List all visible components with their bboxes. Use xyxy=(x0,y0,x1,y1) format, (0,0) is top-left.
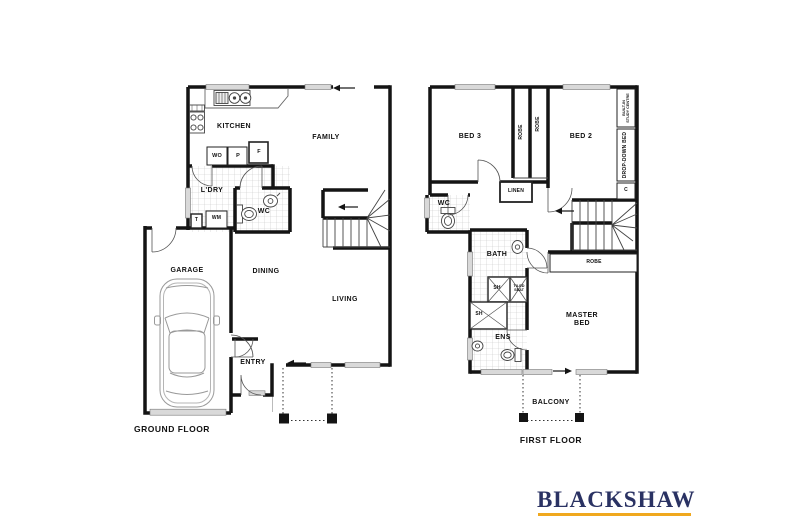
floorplan-page: KITCHENFAMILYWOPFL'DRYWCTWMGARAGEDININGL… xyxy=(0,0,790,527)
bed-2-label: BED 2 xyxy=(570,133,593,141)
balcony-door-arrow xyxy=(553,368,572,374)
window xyxy=(345,363,380,368)
robe-bed2-label: ROBE xyxy=(536,116,542,131)
window xyxy=(481,370,522,375)
car-icon xyxy=(155,279,220,407)
window xyxy=(206,85,249,90)
balcony-label: BALCONY xyxy=(532,399,569,407)
bath-label: BATH xyxy=(487,251,508,259)
ground-floor-plan xyxy=(145,85,390,424)
balcony-door xyxy=(523,370,552,375)
toilet-icon xyxy=(515,349,521,362)
washing-machine-label: WM xyxy=(212,216,221,222)
robe-master-label: ROBE xyxy=(586,260,601,266)
dining-label: DINING xyxy=(253,268,280,276)
built-in-study-label: BUILT-IN STUDY CENTRE xyxy=(622,93,631,122)
window xyxy=(563,85,610,90)
wc-ground-label: WC xyxy=(258,208,270,216)
tub-label: T xyxy=(195,218,198,224)
robe-bed3-label: ROBE xyxy=(519,124,525,139)
blackshaw-logo: BLACKSHAW xyxy=(537,487,693,513)
stairs-direction-arrow xyxy=(555,208,574,214)
family-door-arrow xyxy=(333,85,355,91)
first-floor-plan xyxy=(425,85,638,423)
wc-first-label: WC xyxy=(438,200,450,208)
blackshaw-logo-underline xyxy=(538,513,691,516)
window xyxy=(186,188,191,218)
porch-post xyxy=(327,414,337,424)
ensuite-label: ENS xyxy=(495,334,511,342)
window xyxy=(425,198,430,218)
wall-oven-label: WO xyxy=(212,153,222,159)
living-label: LIVING xyxy=(332,296,358,304)
window xyxy=(305,85,331,90)
family-label: FAMILY xyxy=(312,134,339,142)
window xyxy=(468,252,473,276)
linen-label: LINEN xyxy=(508,189,524,195)
ground-floor-title: GROUND FLOOR xyxy=(134,424,210,434)
garage-door xyxy=(150,409,226,415)
balcony-post xyxy=(519,413,528,422)
window xyxy=(468,338,473,360)
tiled-seat-label: TILED SEAT xyxy=(514,284,525,293)
laundry-label: L'DRY xyxy=(201,187,223,195)
window xyxy=(576,370,607,375)
pantry-label: P xyxy=(236,153,240,159)
balcony-outline xyxy=(523,375,580,421)
first-stairs xyxy=(572,200,637,250)
stove-icon xyxy=(190,105,205,133)
cupboard-label: C xyxy=(624,188,628,194)
shower-ens-label: SH xyxy=(475,312,482,318)
kitchen-label: KITCHEN xyxy=(217,123,251,131)
drop-down-bed-label: DROP-DOWN BED xyxy=(623,132,629,179)
bed-3-label: BED 3 xyxy=(459,133,482,141)
porch-outline xyxy=(283,368,332,421)
fridge-label: F xyxy=(257,149,261,155)
stairs-direction-arrow xyxy=(338,204,358,210)
entry-label: ENTRY xyxy=(240,359,265,367)
window xyxy=(455,85,495,90)
kitchen-sink-icon xyxy=(214,91,251,106)
first-floor-title: FIRST FLOOR xyxy=(520,435,582,445)
garage-label: GARAGE xyxy=(170,267,203,275)
floorplan-linework xyxy=(0,0,790,527)
shower-bath-label: SH xyxy=(493,286,500,292)
master-bed-label: MASTER BED xyxy=(566,312,598,328)
balcony-post xyxy=(575,413,584,422)
porch-post xyxy=(279,414,289,424)
window xyxy=(311,363,331,368)
